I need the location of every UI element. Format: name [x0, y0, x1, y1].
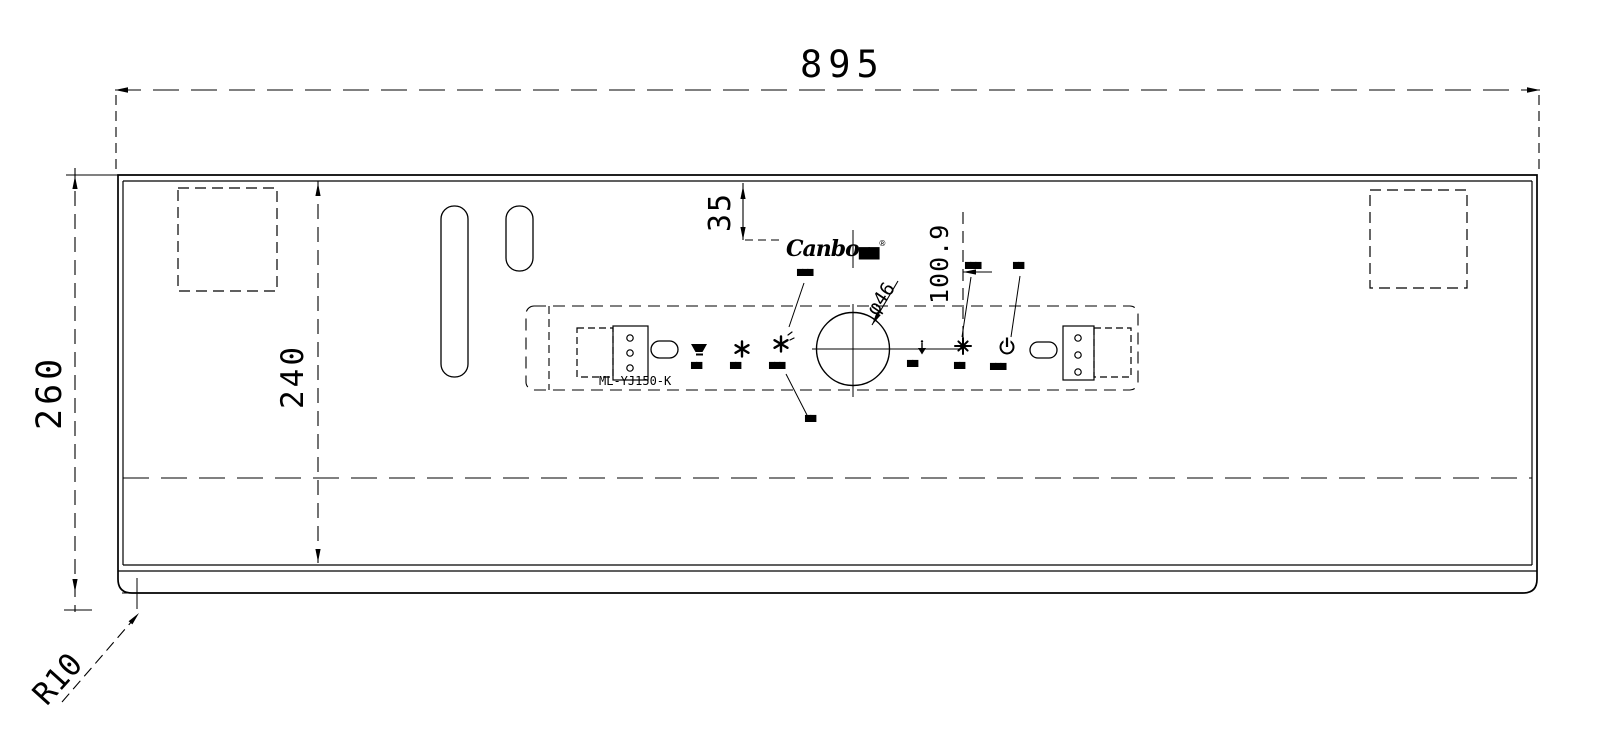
brand-logo-text: Canbo — [786, 236, 859, 262]
callout-upper-fan: ▆▆▆ — [965, 261, 980, 269]
corner-radius-center-marks — [122, 578, 154, 609]
button-label-2: ▆▆ — [730, 361, 740, 369]
wok-icon — [691, 344, 707, 356]
fan-burst-icon — [955, 338, 971, 354]
brand-logo-cjk: ▆▆ — [859, 244, 879, 260]
dim-240-lines — [315, 181, 320, 563]
left-indicator-oval — [651, 341, 678, 358]
callout-lower: ▆▆ — [805, 414, 815, 422]
left-connector — [577, 326, 648, 380]
callout-upper-power: ▆▆ — [1013, 261, 1023, 269]
right-connector — [1063, 326, 1131, 380]
fan-low-icon — [736, 342, 749, 357]
button-label-1: ▆▆ — [691, 361, 701, 369]
button-label-3: ▆▆▆ — [769, 361, 784, 369]
dim-panel-offset-label: 100.9 — [927, 224, 952, 304]
dim-100-9-lines — [963, 212, 992, 345]
drawing-linework — [0, 0, 1618, 730]
panel-model-number: ML-YJ150-K — [599, 374, 671, 388]
button-label-5: ▆▆ — [954, 361, 964, 369]
dim-overall-width-label: 895 — [800, 46, 885, 83]
button-label-6: ▆▆▆ — [990, 362, 1005, 370]
right-mounting-cutout — [1370, 190, 1467, 288]
right-indicator-oval — [1030, 342, 1057, 358]
fan-high-icon — [775, 332, 795, 352]
dim-35-lines — [740, 183, 784, 240]
dim-logo-offset-label: 35 — [706, 192, 736, 232]
callout-upper-left: ▆▆▆ — [797, 268, 812, 276]
dim-260-lines — [64, 168, 118, 612]
range-hood-installation-drawing: 895 260 240 35 100.9 φ46 R10 Canbo▆▆® ML… — [0, 0, 1618, 730]
tall-vent-slot — [441, 206, 468, 377]
callout-leaders — [786, 276, 1020, 415]
left-mounting-cutout — [178, 188, 277, 291]
drip-icon — [918, 340, 926, 354]
brand-logo: Canbo▆▆® — [786, 236, 886, 262]
power-icon — [1001, 338, 1014, 354]
dim-overall-height-label: 260 — [33, 355, 68, 430]
dim-895-lines — [115, 87, 1540, 173]
button-label-4: ▆▆ — [907, 359, 917, 367]
dim-inner-height-label: 240 — [278, 344, 309, 409]
short-vent-slot — [506, 206, 533, 271]
registered-mark: ® — [878, 239, 886, 248]
